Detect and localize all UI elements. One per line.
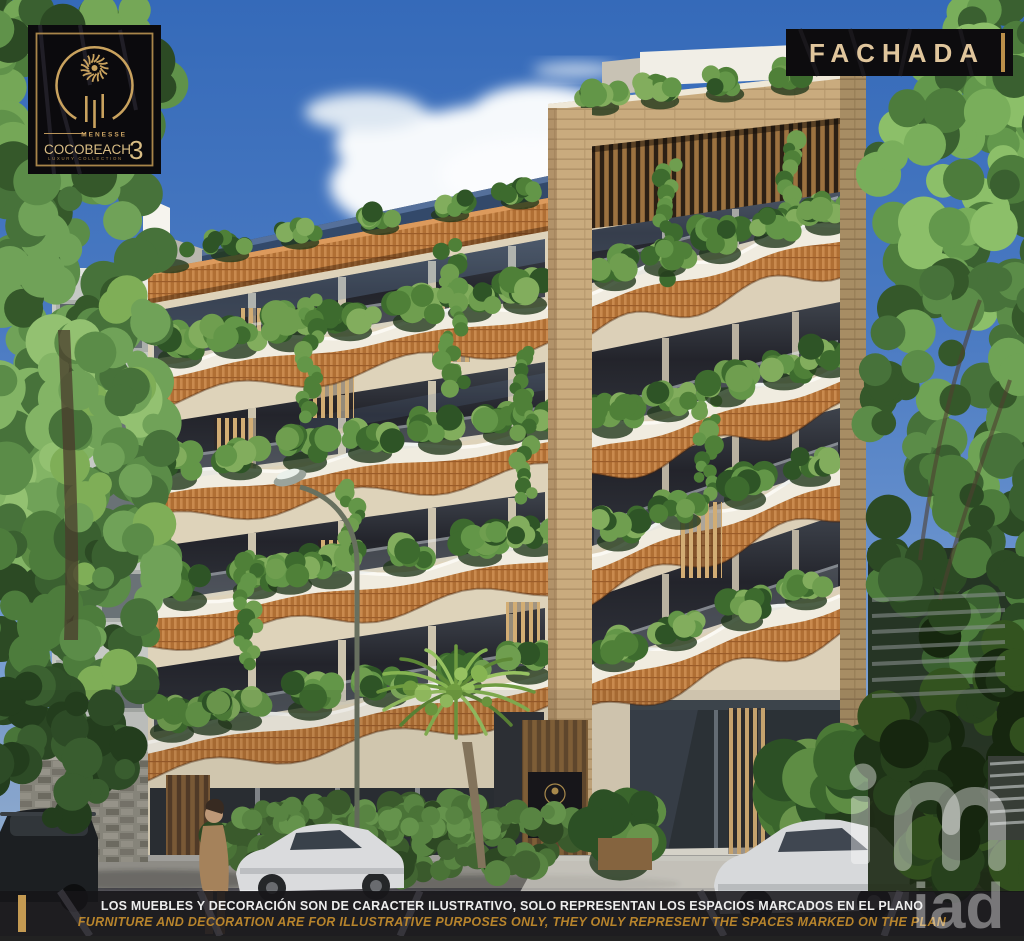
svg-text:MENESSE: MENESSE [81, 132, 127, 139]
svg-text:iad: iad [912, 870, 1004, 936]
svg-text:FURNITURE AND DECORATION ARE F: FURNITURE AND DECORATION ARE FOR ILLUSTR… [78, 915, 947, 929]
svg-text:LOS MUEBLES Y DECORACIÓN SON D: LOS MUEBLES Y DECORACIÓN SON DE CARACTER… [101, 898, 923, 913]
svg-text:FACHADA: FACHADA [809, 38, 985, 68]
svg-text:LUXURY COLLECTION: LUXURY COLLECTION [48, 156, 123, 161]
svg-text:COCOBEACH: COCOBEACH [44, 142, 131, 157]
svg-text:3: 3 [129, 135, 143, 165]
